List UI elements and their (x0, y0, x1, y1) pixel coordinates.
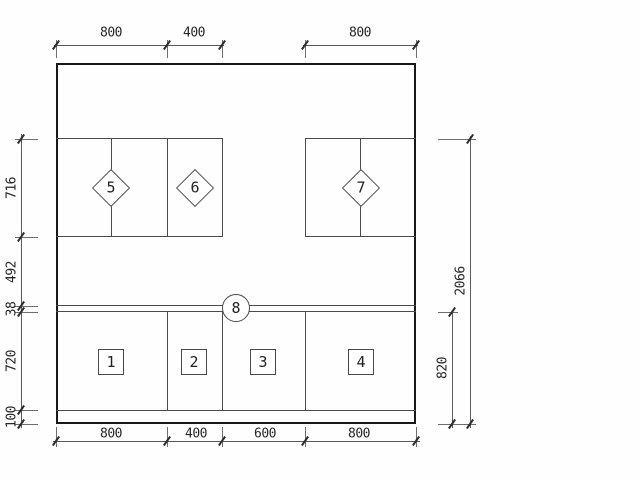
square-tag-4: 4 (348, 349, 374, 375)
dim-label-top-800a: 800 (100, 27, 122, 40)
square-tag-2: 2 (181, 349, 207, 375)
lower-sill-line (56, 410, 416, 411)
dimension-line-820 (452, 312, 453, 428)
dim-label-right-2066: 2066 (455, 266, 468, 295)
square-tag-3: 3 (250, 349, 276, 375)
dim-label-right-820: 820 (437, 357, 450, 379)
dim-label-bottom-800b: 800 (348, 428, 370, 441)
dim-label-left-720: 720 (6, 350, 19, 372)
dim-label-left-716: 716 (6, 177, 19, 199)
circle-tag-8-label: 8 (231, 299, 240, 317)
lower-divider-3 (305, 312, 306, 410)
dim-label-top-800b: 800 (349, 27, 371, 40)
dimension-line-left (21, 134, 22, 428)
dimension-line-2066 (470, 136, 471, 428)
dim-label-bottom-600: 600 (254, 428, 276, 441)
dimension-line-top-right (303, 45, 418, 46)
square-tag-3-label: 3 (258, 353, 267, 371)
diamond-tag-5-label: 5 (106, 181, 115, 196)
lower-divider-2 (222, 312, 223, 410)
circle-tag-8: 8 (222, 294, 250, 322)
dim-label-left-100: 100 (6, 406, 19, 428)
square-tag-1: 1 (98, 349, 124, 375)
square-tag-4-label: 4 (356, 353, 365, 371)
square-tag-1-label: 1 (106, 353, 115, 371)
diamond-tag-6-label: 6 (190, 181, 199, 196)
drawing-canvas[interactable]: 5 6 7 8 1 2 3 4 800 400 800 716 492 38 7… (0, 0, 640, 480)
extension-line (438, 312, 458, 313)
dim-label-left-492: 492 (6, 261, 19, 283)
dimension-line-top-left (54, 45, 224, 46)
dim-label-bottom-800a: 800 (100, 428, 122, 441)
dim-label-bottom-400: 400 (185, 428, 207, 441)
panel-divider (167, 138, 168, 237)
lower-divider-1 (167, 312, 168, 410)
dim-label-left-38: 38 (6, 302, 19, 317)
dim-label-top-400: 400 (183, 27, 205, 40)
diamond-tag-7-label: 7 (356, 181, 365, 196)
square-tag-2-label: 2 (189, 353, 198, 371)
